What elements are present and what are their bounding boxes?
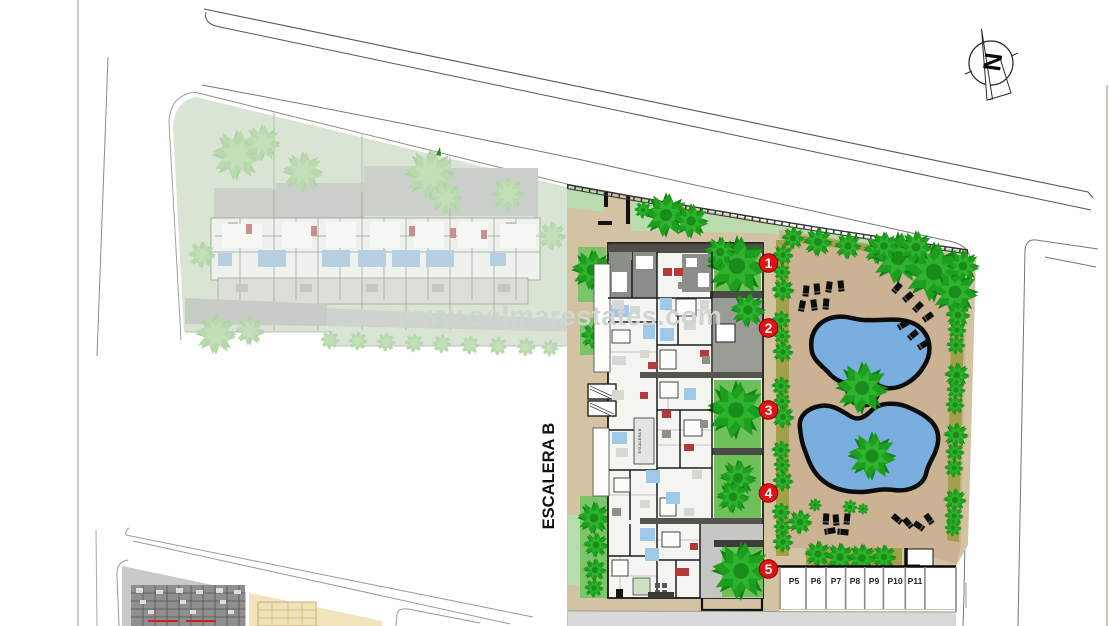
svg-text:ESCALERA B: ESCALERA B xyxy=(540,423,558,530)
svg-text:3: 3 xyxy=(765,402,773,418)
svg-text:P9: P9 xyxy=(869,576,880,586)
svg-text:P5: P5 xyxy=(789,576,800,586)
svg-text:4: 4 xyxy=(765,485,773,501)
svg-text:5: 5 xyxy=(765,561,773,577)
svg-text:1: 1 xyxy=(765,255,773,271)
svg-text:ESCALERA B: ESCALERA B xyxy=(637,428,642,453)
svg-text:P6: P6 xyxy=(811,576,822,586)
svg-text:N: N xyxy=(977,51,1007,73)
svg-text:P7: P7 xyxy=(831,576,842,586)
svg-text:www.solmarestates.com: www.solmarestates.com xyxy=(397,301,723,331)
svg-text:P10: P10 xyxy=(887,576,902,586)
svg-text:P8: P8 xyxy=(850,576,861,586)
svg-text:2: 2 xyxy=(765,320,773,336)
svg-text:P11: P11 xyxy=(908,576,923,586)
